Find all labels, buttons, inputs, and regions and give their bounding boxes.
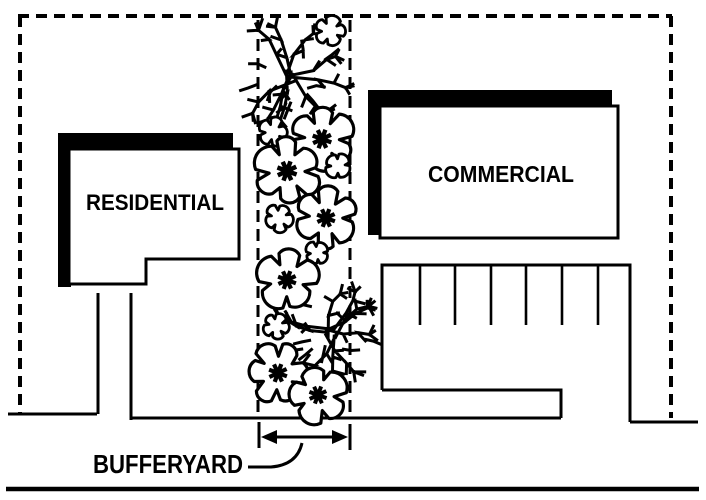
- commercial-building-shadow-top: [368, 90, 612, 107]
- arrowhead-left-icon: [261, 430, 277, 444]
- bufferyard-label: BUFFERYARD: [93, 449, 243, 479]
- parking-lot: [382, 265, 630, 422]
- tree-cloud-symbol: [326, 154, 350, 178]
- arrowhead-right-icon: [332, 430, 348, 444]
- street: [8, 414, 698, 422]
- bufferyard-annotation: BUFFERYARD: [93, 422, 350, 479]
- residential-building: [69, 149, 239, 284]
- residential-driveway: [98, 293, 131, 420]
- tree-cloud-symbol: [266, 205, 294, 233]
- buffer-plantings: [241, 16, 381, 425]
- residential-lot: RESIDENTIAL: [58, 133, 239, 420]
- commercial-label: COMMERCIAL: [428, 161, 574, 187]
- tree-cloud-symbol: [263, 314, 289, 339]
- parking-stall-lines: [420, 265, 598, 325]
- commercial-lot: COMMERCIAL: [368, 90, 630, 422]
- residential-label: RESIDENTIAL: [86, 190, 224, 215]
- site-plan-svg: RESIDENTIAL COMMERCIAL: [0, 0, 706, 500]
- label-leader-line: [248, 443, 302, 467]
- bufferyard-figure: RESIDENTIAL COMMERCIAL: [0, 0, 706, 500]
- tree-cloud-symbol: [316, 16, 345, 46]
